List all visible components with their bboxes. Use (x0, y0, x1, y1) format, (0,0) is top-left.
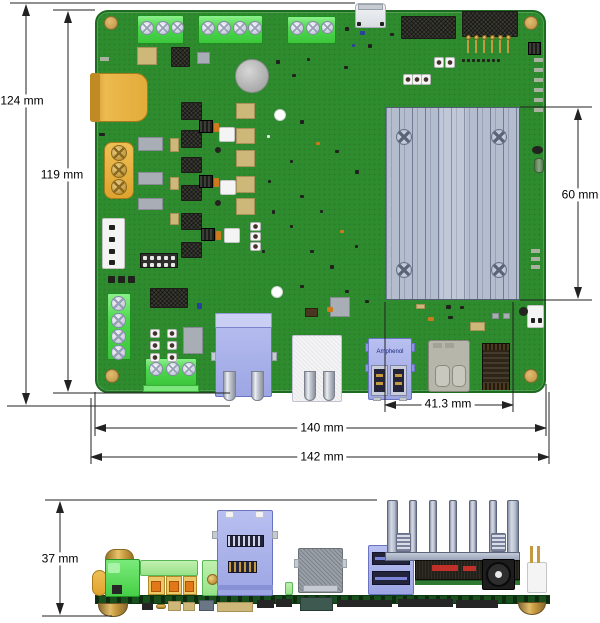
edge-pad (534, 58, 543, 62)
usb-tongue (375, 577, 407, 580)
micro-usb-shell (358, 4, 383, 10)
xt60-pin (111, 179, 127, 195)
terminal-screw (156, 21, 170, 35)
smd-component (310, 250, 314, 253)
header-pin (164, 263, 168, 267)
jumper-pad (250, 232, 261, 241)
inductor (171, 47, 190, 67)
smd-component (482, 59, 485, 62)
pad (236, 150, 255, 167)
components-layer (0, 0, 600, 623)
header-pin (143, 263, 147, 267)
som-component (432, 565, 458, 571)
smd-component (327, 307, 333, 312)
edge-pad (534, 68, 543, 72)
smd-component (316, 142, 320, 145)
edge-pad (531, 257, 540, 261)
under-board-part (300, 597, 333, 611)
under-board-part (456, 600, 498, 608)
plated-hole (271, 286, 283, 298)
smd-component (272, 210, 275, 214)
connector-tab (399, 397, 407, 401)
header-pin-stem (483, 40, 485, 53)
rf-module (401, 16, 456, 39)
header-pin (171, 263, 175, 267)
jumper-pad (167, 329, 177, 338)
pad (170, 138, 179, 152)
terminal-screw (149, 362, 163, 376)
header-pin (109, 249, 115, 254)
smd-component (428, 317, 434, 321)
mounting-hole (524, 16, 538, 30)
terminal-base (143, 385, 199, 392)
smd-component (345, 290, 349, 293)
ic-chip (197, 52, 210, 64)
header-pin (150, 256, 154, 260)
xt60-pin (111, 145, 127, 161)
connector-tab (411, 343, 415, 352)
smd-component (360, 31, 365, 35)
under-board-part (199, 600, 214, 611)
terminal-screw (182, 362, 196, 376)
usb-brand-label: Amphenol (376, 349, 403, 355)
standoff (518, 602, 546, 615)
smd-component (344, 66, 348, 69)
connector-tab (225, 511, 234, 518)
terminal-screw (111, 296, 126, 311)
pad (138, 172, 163, 185)
smd-component (216, 231, 221, 240)
heatsink-fin (469, 500, 477, 553)
side-rj45-stack (217, 510, 273, 596)
jumper-pad (445, 57, 455, 68)
pcb-dimension-drawing: 124 mm 119 mm 60 mm 41.3 mm 140 mm 142 m… (0, 0, 600, 623)
rf-module (462, 11, 518, 37)
smd-component (357, 22, 361, 26)
smd-component (330, 265, 334, 269)
dim-label-module-width: 41.3 mm (422, 397, 475, 410)
smd-component (292, 74, 296, 77)
audio-jack-teeth (483, 344, 509, 350)
terminal-screw (166, 362, 180, 376)
terminal-screw (111, 329, 126, 344)
ic-chip (528, 42, 541, 55)
pad (137, 47, 157, 65)
edge-pad (534, 108, 543, 112)
smd-component (503, 313, 510, 319)
smd-component (290, 160, 293, 163)
under-board-part (142, 603, 153, 610)
smd-component (320, 210, 323, 213)
smd-component (108, 276, 115, 283)
dim-label-overall-height: 124 mm (0, 94, 47, 107)
header-pin (164, 256, 168, 260)
smd-component (532, 146, 543, 154)
connector-contact (304, 371, 316, 401)
pad (236, 176, 255, 193)
connector-contact (223, 371, 236, 401)
jumper-pad (167, 353, 177, 362)
edge-pad (534, 88, 543, 92)
side-relay (140, 560, 198, 576)
header-pin (531, 318, 535, 323)
pad (236, 128, 255, 144)
terminal-screw (171, 21, 184, 34)
side-rj45-port (227, 535, 264, 547)
jumper-pad (250, 222, 261, 231)
jumper-pad (150, 329, 160, 338)
smd-component (365, 300, 369, 303)
terminal-screw (111, 313, 126, 328)
dim-label-pcb-width: 140 mm (297, 421, 346, 434)
usb-contact (376, 382, 383, 385)
jumper-pad (421, 74, 431, 85)
som-component (463, 566, 476, 571)
dim-label-pcb-height: 119 mm (38, 168, 86, 181)
audio-jack-teeth (483, 383, 509, 390)
fan-connector-pin (530, 546, 533, 563)
smd-component (300, 120, 304, 124)
dim-label-module-height: 60 mm (559, 188, 600, 201)
usb-contact (395, 382, 402, 385)
smd-component (118, 276, 125, 283)
smd-component (300, 195, 304, 198)
under-board-part (257, 600, 274, 608)
xt60-pin (111, 162, 127, 178)
pad (138, 198, 163, 210)
side-rj45-port (228, 561, 257, 573)
heatsink-fin (449, 500, 457, 553)
terminal-screw (321, 21, 334, 34)
header-pin (109, 260, 115, 265)
smd-component (448, 316, 453, 319)
mounting-hole (104, 16, 118, 30)
inductor (181, 157, 202, 173)
pad (220, 180, 236, 195)
header-pin (157, 263, 161, 267)
smd-component (307, 58, 310, 61)
heatsink-screw (491, 129, 507, 145)
capacitor (534, 158, 544, 173)
smd-component (267, 135, 270, 138)
side-rj45-base (217, 585, 273, 590)
pad (170, 213, 179, 225)
ic-chip (330, 297, 350, 317)
header-pin-stem (499, 40, 501, 53)
connector-tab (342, 559, 347, 568)
header-pin-stem (467, 40, 469, 53)
side-hdmi-base (303, 585, 338, 592)
smd-component (128, 276, 135, 283)
side-fan-connector (527, 562, 547, 593)
connector-tab (255, 511, 264, 518)
heatsink-fin (429, 500, 437, 553)
dim-label-side-height: 37 mm (39, 552, 82, 565)
ic-chip (305, 308, 318, 317)
jumper-pad (150, 341, 160, 350)
jumper-pad (150, 353, 160, 362)
connector-tab (212, 531, 218, 539)
header-pin (171, 256, 175, 260)
connector-tab (373, 397, 381, 401)
side-terminal-slot (112, 585, 122, 594)
connector-tab (211, 352, 216, 361)
ic-chip (150, 288, 188, 308)
heatsink-fin (507, 500, 519, 553)
ic-chip (201, 228, 215, 241)
connector-tab (411, 364, 415, 372)
connector-tab (294, 559, 299, 568)
heatsink-spring-screw (491, 533, 506, 552)
smd-component (487, 59, 490, 62)
connector-contact (323, 371, 335, 401)
dim-label-overall-width: 142 mm (297, 450, 346, 463)
smd-component (368, 44, 372, 48)
heatsink-screw (396, 129, 412, 145)
terminal-screw (201, 21, 215, 35)
pad (236, 198, 255, 215)
smd-component (467, 59, 470, 62)
smd-component (472, 59, 475, 62)
smd-component (268, 180, 271, 183)
microsd-notch (445, 343, 454, 348)
header-pin (538, 318, 542, 323)
terminal-screw (233, 21, 247, 35)
smd-component (215, 200, 221, 206)
smd-component (460, 306, 464, 309)
microsd-cutout (435, 365, 450, 387)
header-pin (109, 225, 115, 230)
connector-tab (272, 352, 277, 361)
ic-chip (199, 175, 213, 188)
smd-component (492, 313, 499, 319)
inductor (181, 242, 202, 258)
under-board-part (156, 604, 166, 609)
header-pin (143, 256, 147, 260)
heatsink-screw (491, 262, 507, 278)
smd-component (290, 225, 293, 228)
terminal-screw (217, 21, 231, 35)
smd-component (340, 230, 344, 233)
edge-pad (100, 57, 109, 61)
dc-power-connector-edge (90, 73, 100, 122)
usb-contact (376, 374, 383, 377)
header-pin-stem (491, 40, 493, 53)
pad (236, 103, 255, 119)
smd-component (519, 307, 528, 316)
terminal-screw (290, 21, 304, 35)
edge-pad (531, 249, 540, 253)
heatsink-highlight (440, 108, 466, 299)
under-board-part (337, 600, 392, 607)
edge-pad (534, 78, 543, 82)
pad (138, 137, 163, 151)
mounting-hole (524, 369, 538, 383)
standoff (98, 603, 128, 617)
smd-component (215, 147, 221, 153)
connector-tab (272, 531, 278, 539)
ic-chip (183, 327, 203, 354)
connector-tab (365, 364, 369, 372)
pad (170, 177, 179, 190)
microsd-notch (433, 343, 442, 348)
smd-component (352, 44, 355, 47)
smd-component (355, 245, 358, 248)
plated-hole (274, 109, 286, 121)
jumper-pad (434, 57, 444, 68)
smd-component (380, 22, 384, 26)
fan-hub (495, 571, 502, 578)
fan-connector-pin (537, 546, 540, 563)
header-pin-stem (475, 40, 477, 53)
smd-component (214, 178, 219, 187)
coin-cell-battery (235, 59, 269, 93)
side-terminal-highlight (108, 563, 120, 573)
connector-contact (251, 371, 264, 401)
smd-component (335, 150, 339, 153)
header-pin (109, 237, 115, 242)
terminal-screw (111, 345, 126, 360)
smd-component (262, 250, 265, 253)
header-pin (157, 256, 161, 260)
edge-pad (531, 265, 540, 269)
smd-component (390, 33, 394, 36)
side-relay (285, 582, 293, 595)
mounting-hole (105, 369, 119, 383)
smd-component (497, 59, 500, 62)
heatsink-screw (396, 262, 412, 278)
smd-component (197, 303, 202, 309)
terminal-screw (140, 21, 154, 35)
smd-component (300, 285, 304, 288)
under-board-part (183, 602, 195, 611)
pad (470, 322, 485, 331)
under-board-part (168, 601, 181, 611)
jumper-pad (250, 242, 261, 251)
pad (416, 304, 425, 309)
fan-connector (527, 305, 544, 328)
smd-component (477, 59, 480, 62)
usb-contact (395, 374, 402, 377)
jumper-pad (167, 341, 177, 350)
pad (219, 127, 235, 142)
under-board-part (276, 599, 292, 607)
edge-pad (534, 98, 543, 102)
header-pin-stem (507, 40, 509, 53)
side-terminal-cube-port (169, 581, 179, 592)
microsd-cutout (452, 365, 466, 387)
inductor (181, 102, 202, 120)
terminal-screw (248, 21, 262, 35)
smd-component (446, 305, 451, 309)
usb-port-opening (374, 369, 385, 392)
ic-chip (199, 120, 213, 133)
smd-component (492, 59, 495, 62)
heatsink-spring-screw (396, 533, 411, 552)
smd-component (345, 27, 349, 31)
under-board-part (398, 599, 453, 607)
smd-component (276, 60, 280, 64)
terminal-screw (306, 21, 320, 35)
inductor (181, 213, 202, 230)
pad (224, 228, 240, 243)
side-terminal-cube-port (185, 581, 194, 592)
under-board-part (217, 602, 253, 612)
header-pin (150, 263, 154, 267)
connector-tab (365, 343, 369, 352)
smd-component (462, 59, 465, 62)
smd-component (99, 133, 105, 136)
usb-port-opening (393, 369, 404, 392)
smd-component (355, 170, 359, 174)
side-terminal-cube-port (151, 581, 161, 592)
rj45-top-strip (215, 313, 272, 328)
